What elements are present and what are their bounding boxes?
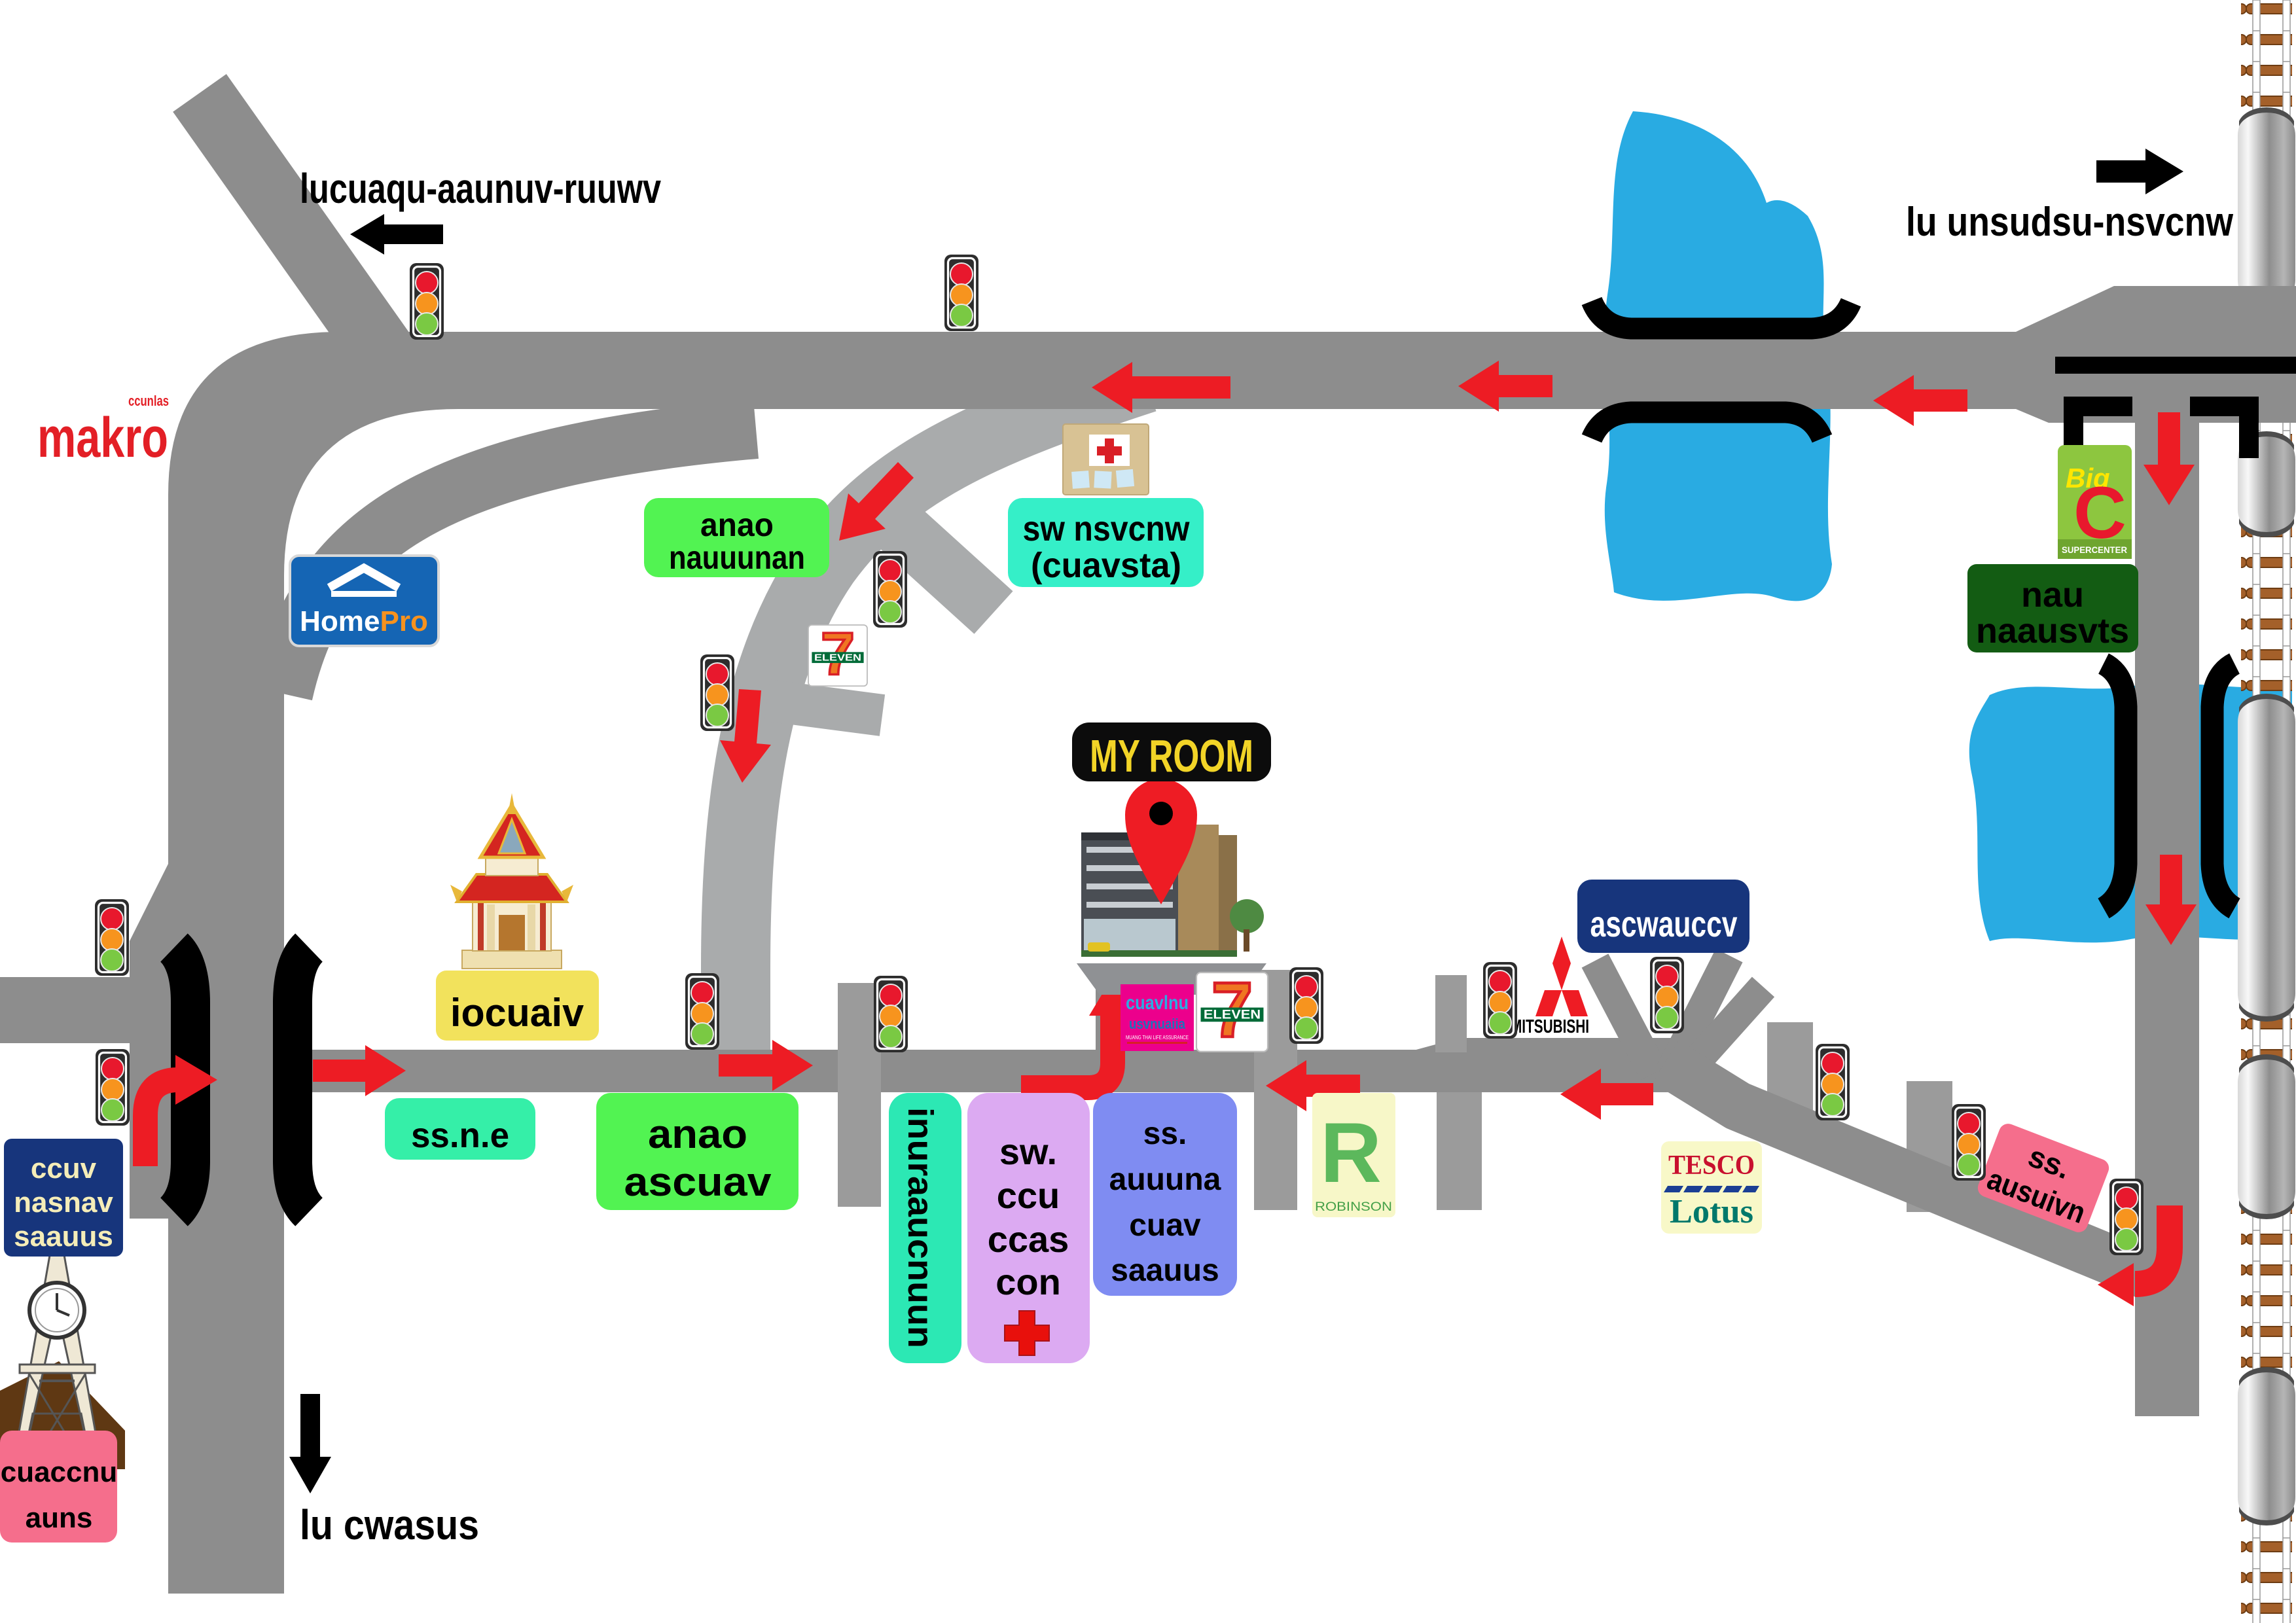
svg-text:con: con xyxy=(996,1261,1061,1302)
svg-text:cuav: cuav xyxy=(1129,1208,1201,1243)
svg-text:(cuavsta): (cuavsta) xyxy=(1031,546,1181,585)
svg-text:R: R xyxy=(1320,1105,1382,1200)
svg-text:saauus: saauus xyxy=(1111,1253,1219,1288)
svg-text:saauus: saauus xyxy=(14,1221,113,1253)
svg-text:lu cwasus: lu cwasus xyxy=(300,1501,479,1548)
svg-text:HomePro: HomePro xyxy=(300,605,428,637)
svg-text:makro: makro xyxy=(37,406,168,469)
svg-text:iocuaiv: iocuaiv xyxy=(450,991,584,1035)
svg-text:cuavlnu: cuavlnu xyxy=(1126,992,1189,1014)
svg-text:MITSUBISHI: MITSUBISHI xyxy=(1511,1016,1589,1037)
svg-text:sw.: sw. xyxy=(999,1131,1057,1172)
svg-text:ccuv: ccuv xyxy=(31,1152,97,1185)
svg-text:sw nsvcnw: sw nsvcnw xyxy=(1023,509,1191,548)
svg-text:Lotus: Lotus xyxy=(1670,1193,1753,1230)
svg-text:auuuna: auuuna xyxy=(1109,1162,1221,1197)
svg-text:ccas: ccas xyxy=(988,1219,1069,1260)
svg-text:inuraaucnuun: inuraaucnuun xyxy=(901,1107,940,1348)
svg-text:SUPERCENTER: SUPERCENTER xyxy=(2062,544,2127,555)
svg-text:TESCO: TESCO xyxy=(1668,1150,1755,1181)
svg-text:ccunlas: ccunlas xyxy=(128,393,169,409)
svg-text:anao: anao xyxy=(700,507,774,543)
svg-text:ROBINSON: ROBINSON xyxy=(1315,1200,1392,1214)
svg-text:ccu: ccu xyxy=(997,1175,1060,1216)
svg-text:naausvts: naausvts xyxy=(1976,611,2129,651)
svg-text:nauuunan: nauuunan xyxy=(669,539,805,576)
svg-text:ss.: ss. xyxy=(1143,1116,1187,1151)
svg-text:auns: auns xyxy=(26,1502,93,1534)
svg-text:MUANG THAI LIFE ASSURANCE: MUANG THAI LIFE ASSURANCE xyxy=(1126,1035,1189,1041)
svg-text:nasnav: nasnav xyxy=(14,1186,113,1219)
svg-text:usvnuaiia: usvnuaiia xyxy=(1129,1016,1186,1032)
svg-text:lucuaqu-aaunuv-ruuwv: lucuaqu-aaunuv-ruuwv xyxy=(300,165,661,212)
svg-text:ascwauccv: ascwauccv xyxy=(1590,903,1738,944)
svg-text:anao: anao xyxy=(648,1112,747,1157)
svg-text:lu unsudsu-nsvcnw: lu unsudsu-nsvcnw xyxy=(1906,200,2234,245)
svg-text:ascuav: ascuav xyxy=(624,1160,772,1205)
svg-text:nau: nau xyxy=(2021,575,2084,615)
svg-text:cuaccnu: cuaccnu xyxy=(1,1456,118,1488)
svg-text:ss.n.e: ss.n.e xyxy=(411,1116,509,1155)
svg-text:MY ROOM: MY ROOM xyxy=(1090,730,1253,781)
